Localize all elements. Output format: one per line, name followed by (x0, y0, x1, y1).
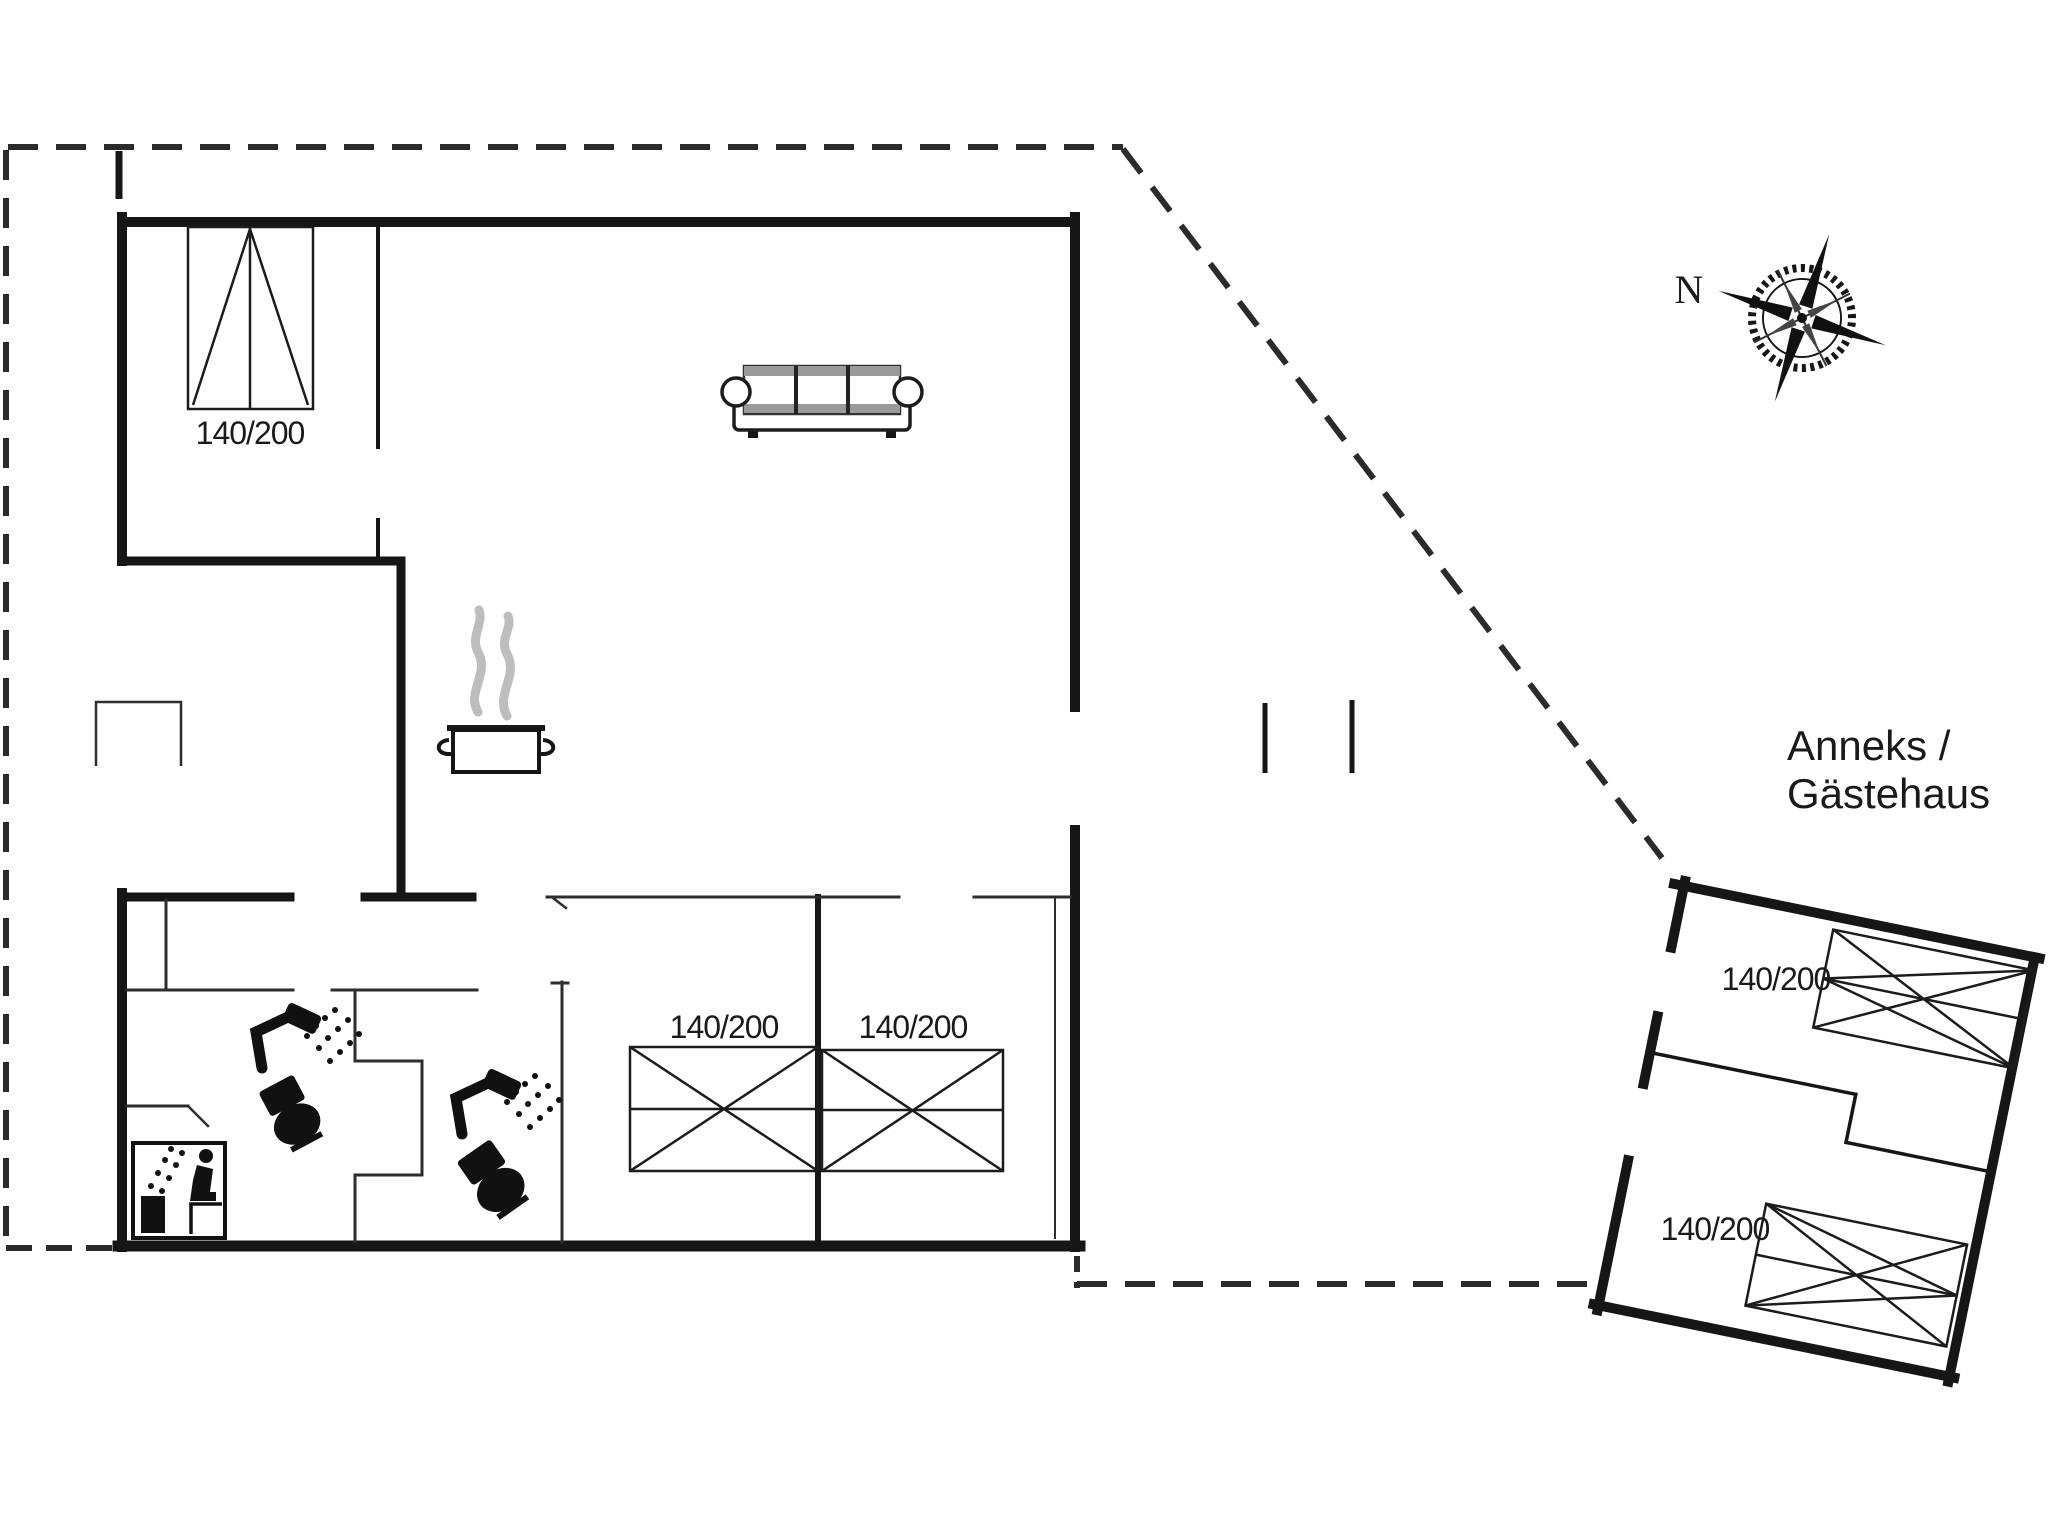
toilet-icon (453, 1136, 536, 1224)
floorplan-drawing: 140/200 140/200 140/200 (0, 0, 2048, 1536)
annex-bed-bottom (1745, 1204, 1967, 1347)
entrance-step-outline (96, 702, 181, 766)
annex-title-line1: Anneks / (1787, 722, 1951, 769)
floorplan-page: 140/200 140/200 140/200 (0, 0, 2048, 1536)
terrace-boundary-dashed (6, 147, 1662, 1288)
bed-mid-left (630, 1047, 818, 1171)
steam-squiggle (475, 610, 482, 712)
bed-mid-right (822, 1050, 1003, 1171)
steam-squiggle (504, 616, 511, 716)
toilet-icon (254, 1072, 329, 1156)
cooking-pot-icon (439, 610, 554, 772)
annex-title-line2: Gästehaus (1787, 770, 1990, 817)
sofa-icon (722, 366, 922, 438)
shower-icon (256, 1002, 362, 1068)
terrace-step-ticks (1265, 700, 1352, 773)
annex-bed-bottom-size-label: 140/200 (1661, 1211, 1770, 1247)
interior-walls-thin (127, 897, 1070, 1242)
compass-north-label: N (1675, 267, 1704, 312)
shower-icon (456, 1068, 562, 1134)
bed-top-left-size-label: 140/200 (196, 415, 305, 451)
sauna-icon (133, 1143, 225, 1238)
bed-mid-left-size-label: 140/200 (670, 1009, 779, 1045)
compass-rose-icon (1691, 207, 1913, 429)
bed-top-left (188, 227, 313, 409)
annex-bed-top-size-label: 140/200 (1722, 961, 1831, 997)
annex-building (1588, 879, 2041, 1383)
bed-mid-right-size-label: 140/200 (859, 1009, 968, 1045)
